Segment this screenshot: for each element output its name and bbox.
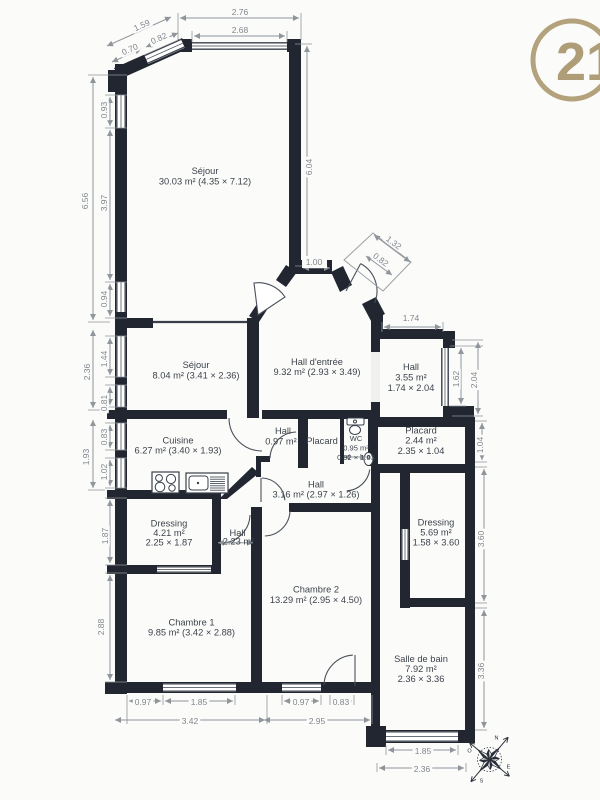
- svg-text:O: O: [467, 749, 472, 755]
- svg-text:Placard: Placard: [405, 426, 437, 436]
- svg-text:0.83: 0.83: [333, 697, 350, 707]
- svg-text:2.04: 2.04: [469, 371, 479, 388]
- svg-text:Placard: Placard: [306, 436, 338, 446]
- svg-text:Hall: Hall: [275, 426, 291, 436]
- svg-text:1.85: 1.85: [191, 697, 208, 707]
- svg-text:2.68: 2.68: [232, 25, 249, 35]
- svg-text:6.27 m² (3.40 × 1.93): 6.27 m² (3.40 × 1.93): [134, 446, 221, 456]
- svg-text:2.25 × 1.87: 2.25 × 1.87: [146, 538, 193, 548]
- svg-text:1.93: 1.93: [81, 448, 91, 465]
- svg-text:5.69 m²: 5.69 m²: [420, 528, 452, 538]
- svg-text:30.03 m² (4.35 × 7.12): 30.03 m² (4.35 × 7.12): [159, 177, 251, 187]
- svg-text:S: S: [480, 779, 484, 785]
- svg-text:Hall: Hall: [403, 362, 419, 372]
- svg-text:3.36: 3.36: [476, 662, 486, 679]
- svg-text:6.04: 6.04: [304, 158, 314, 175]
- svg-text:3.42: 3.42: [182, 716, 199, 726]
- svg-text:1.85: 1.85: [415, 746, 432, 756]
- svg-text:0.97: 0.97: [135, 697, 152, 707]
- svg-text:0.97 m²: 0.97 m²: [265, 437, 297, 447]
- svg-text:1.74 × 2.04: 1.74 × 2.04: [388, 383, 435, 393]
- svg-text:Dressing: Dressing: [418, 517, 455, 527]
- svg-text:1.62: 1.62: [451, 370, 461, 387]
- svg-text:0.83: 0.83: [99, 428, 109, 445]
- svg-text:Hall: Hall: [308, 480, 324, 490]
- svg-text:1.02: 1.02: [99, 463, 109, 480]
- svg-text:0.92 × 1.03: 0.92 × 1.03: [337, 453, 375, 462]
- svg-text:2.95: 2.95: [309, 716, 326, 726]
- svg-text:0.97: 0.97: [293, 697, 310, 707]
- svg-text:13.29 m² (2.95 × 4.50): 13.29 m² (2.95 × 4.50): [270, 595, 362, 605]
- svg-text:3.97: 3.97: [99, 194, 109, 211]
- svg-text:Chambre 2: Chambre 2: [293, 584, 339, 594]
- svg-text:1.44: 1.44: [99, 350, 109, 367]
- svg-text:2.36: 2.36: [414, 764, 431, 774]
- svg-text:Dressing: Dressing: [151, 518, 188, 528]
- svg-text:1.04: 1.04: [475, 436, 485, 453]
- svg-text:Séjour: Séjour: [183, 360, 210, 370]
- svg-text:3.16 m² (2.97 × 1.26): 3.16 m² (2.97 × 1.26): [272, 490, 359, 500]
- svg-text:0.94: 0.94: [99, 290, 109, 307]
- svg-text:Salle de bain: Salle de bain: [394, 654, 448, 664]
- svg-text:3.55 m²: 3.55 m²: [395, 373, 427, 383]
- svg-text:8.04 m² (3.41 × 2.36): 8.04 m² (3.41 × 2.36): [152, 371, 239, 381]
- svg-text:9.32 m² (2.93 × 3.49): 9.32 m² (2.93 × 3.49): [273, 367, 360, 377]
- svg-text:9.85 m² (3.42 × 2.88): 9.85 m² (3.42 × 2.88): [148, 628, 235, 638]
- svg-text:2.36 × 3.36: 2.36 × 3.36: [398, 674, 445, 684]
- svg-text:2.88: 2.88: [96, 618, 106, 635]
- svg-text:1.00: 1.00: [306, 257, 323, 267]
- svg-text:Hall d'entrée: Hall d'entrée: [291, 357, 343, 367]
- svg-text:Chambre 1: Chambre 1: [169, 618, 215, 628]
- svg-text:E: E: [507, 765, 511, 771]
- svg-text:1.74: 1.74: [403, 313, 420, 323]
- svg-text:7.92 m²: 7.92 m²: [405, 664, 437, 674]
- svg-text:2.36: 2.36: [82, 363, 92, 380]
- svg-text:1.87: 1.87: [100, 527, 110, 544]
- svg-text:21: 21: [556, 32, 600, 92]
- svg-text:Cuisine: Cuisine: [162, 436, 193, 446]
- svg-text:Séjour: Séjour: [192, 166, 219, 176]
- svg-text:1.58 × 3.60: 1.58 × 3.60: [413, 537, 460, 547]
- svg-text:2.44 m²: 2.44 m²: [405, 436, 437, 446]
- svg-text:0.93: 0.93: [99, 101, 109, 118]
- svg-text:2.23 m²: 2.23 m²: [223, 537, 255, 547]
- svg-text:N: N: [495, 736, 499, 742]
- svg-text:WC: WC: [350, 434, 363, 443]
- svg-text:2.76: 2.76: [232, 7, 249, 17]
- svg-text:0.95 m²: 0.95 m²: [343, 444, 369, 453]
- svg-text:0.81: 0.81: [99, 394, 109, 411]
- svg-text:6.56: 6.56: [80, 192, 90, 209]
- svg-text:2.35 × 1.04: 2.35 × 1.04: [398, 446, 445, 456]
- svg-text:3.60: 3.60: [476, 530, 486, 547]
